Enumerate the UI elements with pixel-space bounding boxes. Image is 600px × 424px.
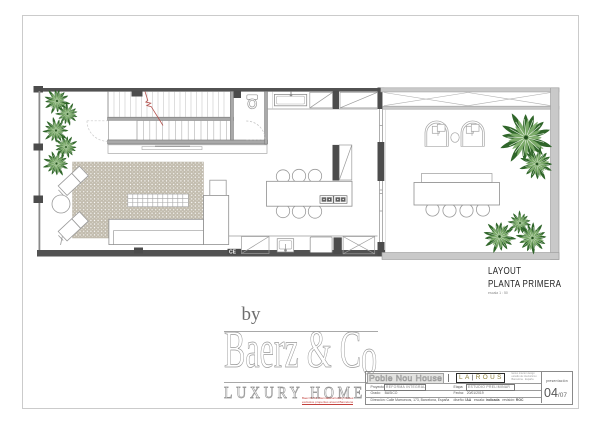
svg-text:CE: CE [229, 250, 237, 256]
